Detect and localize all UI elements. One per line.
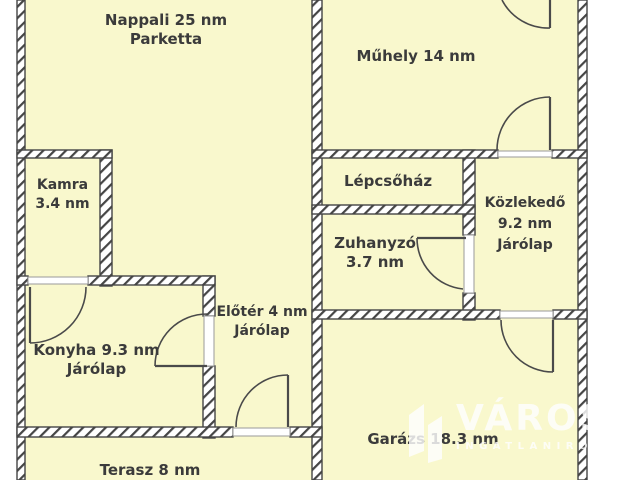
wall-stairwell-bottom — [312, 205, 475, 214]
wall-konyha-top-right — [88, 276, 215, 285]
room-label-lepcsohaz: Lépcsőház — [318, 172, 458, 191]
wall-left-outer — [17, 0, 25, 480]
wall-konyha-top-left — [17, 276, 28, 285]
wall-center-vertical — [312, 0, 322, 480]
floor-plan: Nappali 25 nm Parketta Műhely 14 nm Kamr… — [0, 0, 640, 480]
room-label-kamra: Kamra 3.4 nm — [20, 176, 105, 214]
wall-right-outer — [578, 0, 587, 480]
wall-muhely-bottom-right — [552, 150, 587, 158]
wall-garazs-top-left — [312, 310, 500, 319]
wall-muhely-bottom-left — [312, 150, 498, 158]
wall-garazs-top-right — [553, 310, 587, 319]
room-label-eloter: Előtér 4 nm Járólap — [212, 303, 312, 341]
door-opening-garazs — [500, 311, 553, 318]
room-label-garazs: Garázs 18.3 nm — [343, 430, 523, 449]
door-opening-konyha-top — [28, 277, 88, 284]
door-opening-eloter — [233, 428, 290, 436]
wall-kamra-top — [17, 150, 112, 158]
room-label-zuhanyzo: Zuhanyzó 3.7 nm — [325, 234, 425, 272]
room-label-muhely: Műhely 14 nm — [316, 47, 516, 66]
door-opening-muhely — [498, 151, 552, 157]
wall-terasz-top-right — [290, 427, 322, 437]
wall-kamra-right — [100, 150, 112, 286]
room-label-nappali: Nappali 25 nm Parketta — [66, 11, 266, 49]
wall-terasz-top-left — [17, 427, 233, 437]
door-opening-zuhanyzo — [464, 235, 474, 293]
room-label-terasz: Terasz 8 nm — [60, 461, 240, 480]
room-label-kozlekedo: Közlekedő 9.2 nm Járólap — [474, 193, 576, 256]
room-label-konyha: Konyha 9.3 nm Járólap — [24, 341, 169, 379]
